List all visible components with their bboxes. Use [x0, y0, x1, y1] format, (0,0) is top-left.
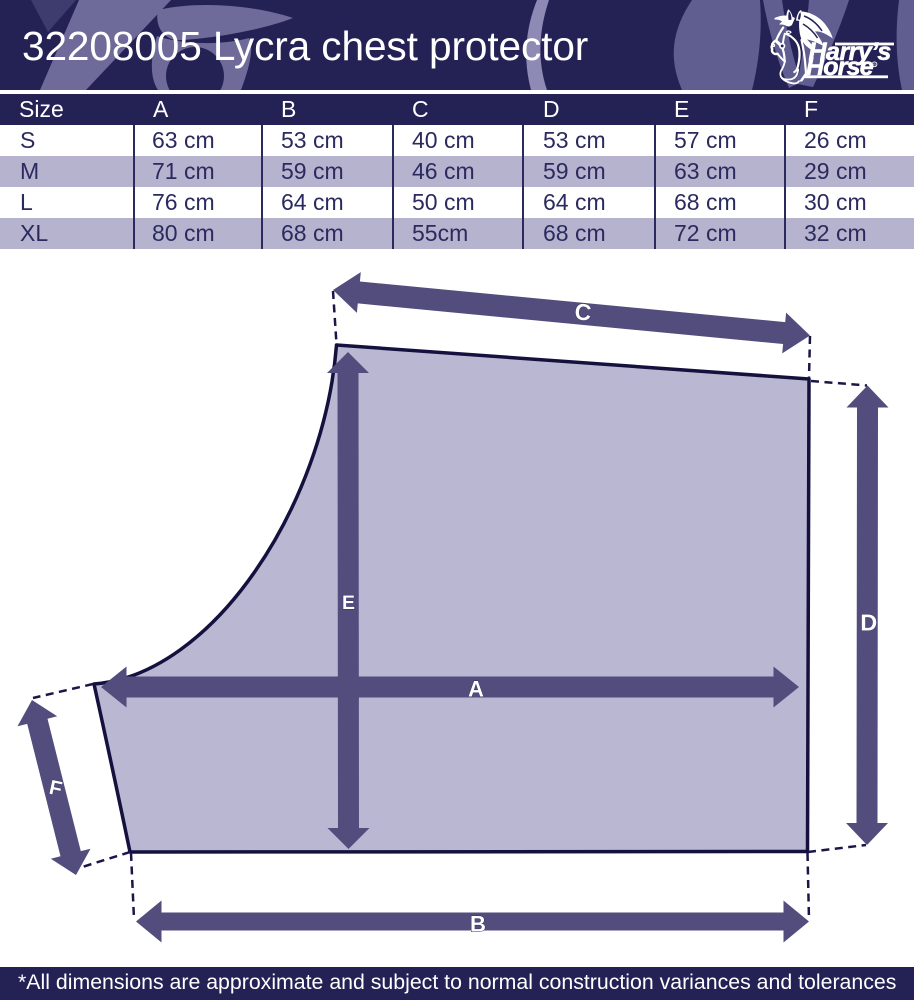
svg-text:D: D — [860, 609, 877, 635]
svg-text:E: E — [342, 592, 355, 614]
svg-text:A: A — [468, 677, 484, 702]
svg-text:B: B — [470, 911, 486, 936]
svg-text:C: C — [574, 298, 593, 325]
